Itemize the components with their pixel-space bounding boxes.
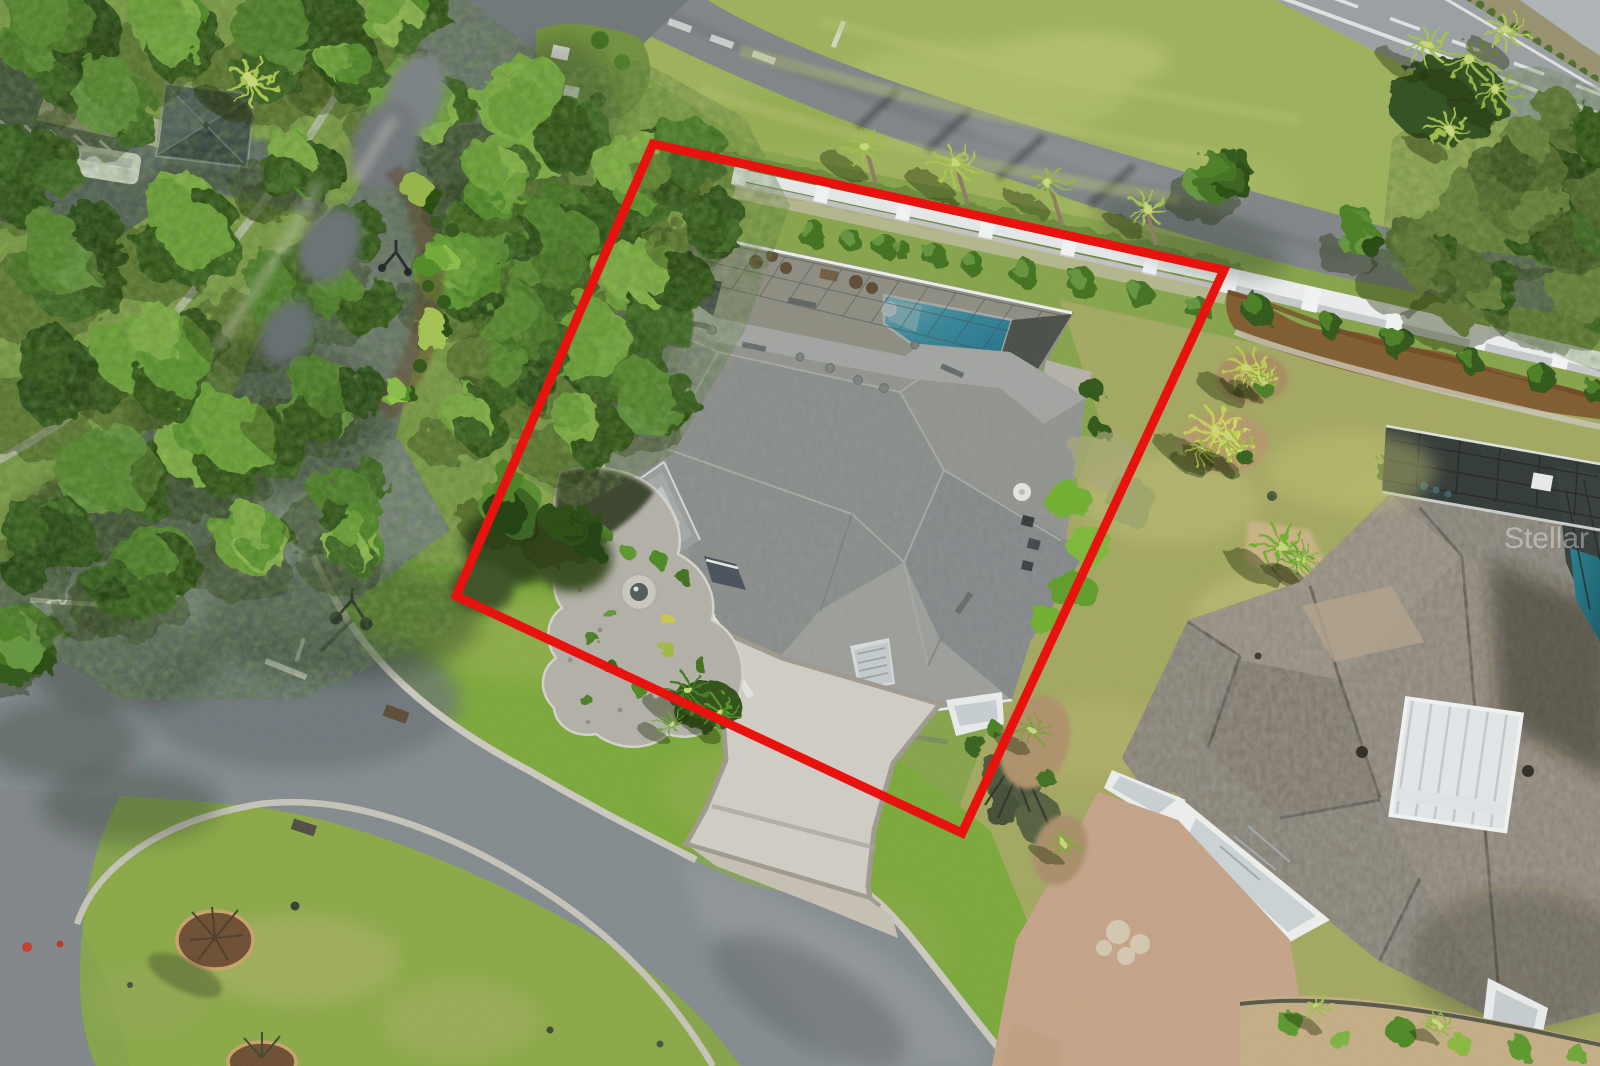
svg-text:Stellar MLS: Stellar MLS — [1504, 522, 1600, 555]
